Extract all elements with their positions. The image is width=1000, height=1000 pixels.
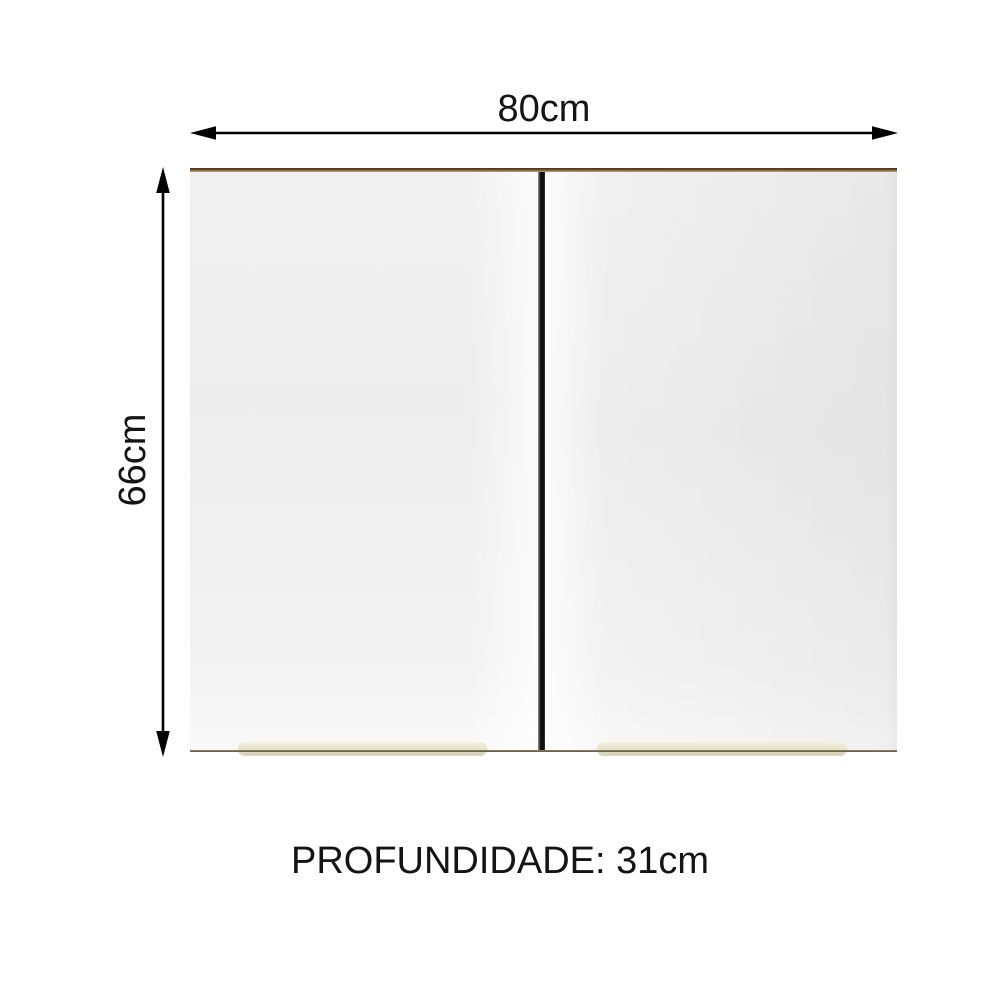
arrow-left-head-icon bbox=[190, 126, 216, 140]
arrow-down-head-icon bbox=[156, 731, 170, 757]
depth-dimension-label: PROFUNDIDADE: 31cm bbox=[0, 842, 1000, 880]
arrow-right-head-icon bbox=[872, 126, 898, 140]
height-dimension-label: 66cm bbox=[114, 414, 152, 507]
cabinet-illustration bbox=[190, 168, 897, 752]
door-gap-divider bbox=[538, 172, 545, 750]
cabinet-left-door bbox=[190, 172, 538, 750]
cabinet-doors bbox=[190, 172, 897, 750]
product-dimension-diagram: 80cm 66cm PROFUNDIDADE: 31cm bbox=[0, 0, 1000, 1000]
right-door-handle bbox=[597, 742, 847, 755]
width-dimension-arrow bbox=[190, 123, 898, 143]
height-dimension-arrow bbox=[153, 167, 173, 757]
left-door-handle bbox=[238, 742, 487, 755]
cabinet-bottom-edge bbox=[190, 750, 897, 752]
arrow-up-head-icon bbox=[156, 167, 170, 193]
cabinet-right-door bbox=[545, 172, 897, 750]
